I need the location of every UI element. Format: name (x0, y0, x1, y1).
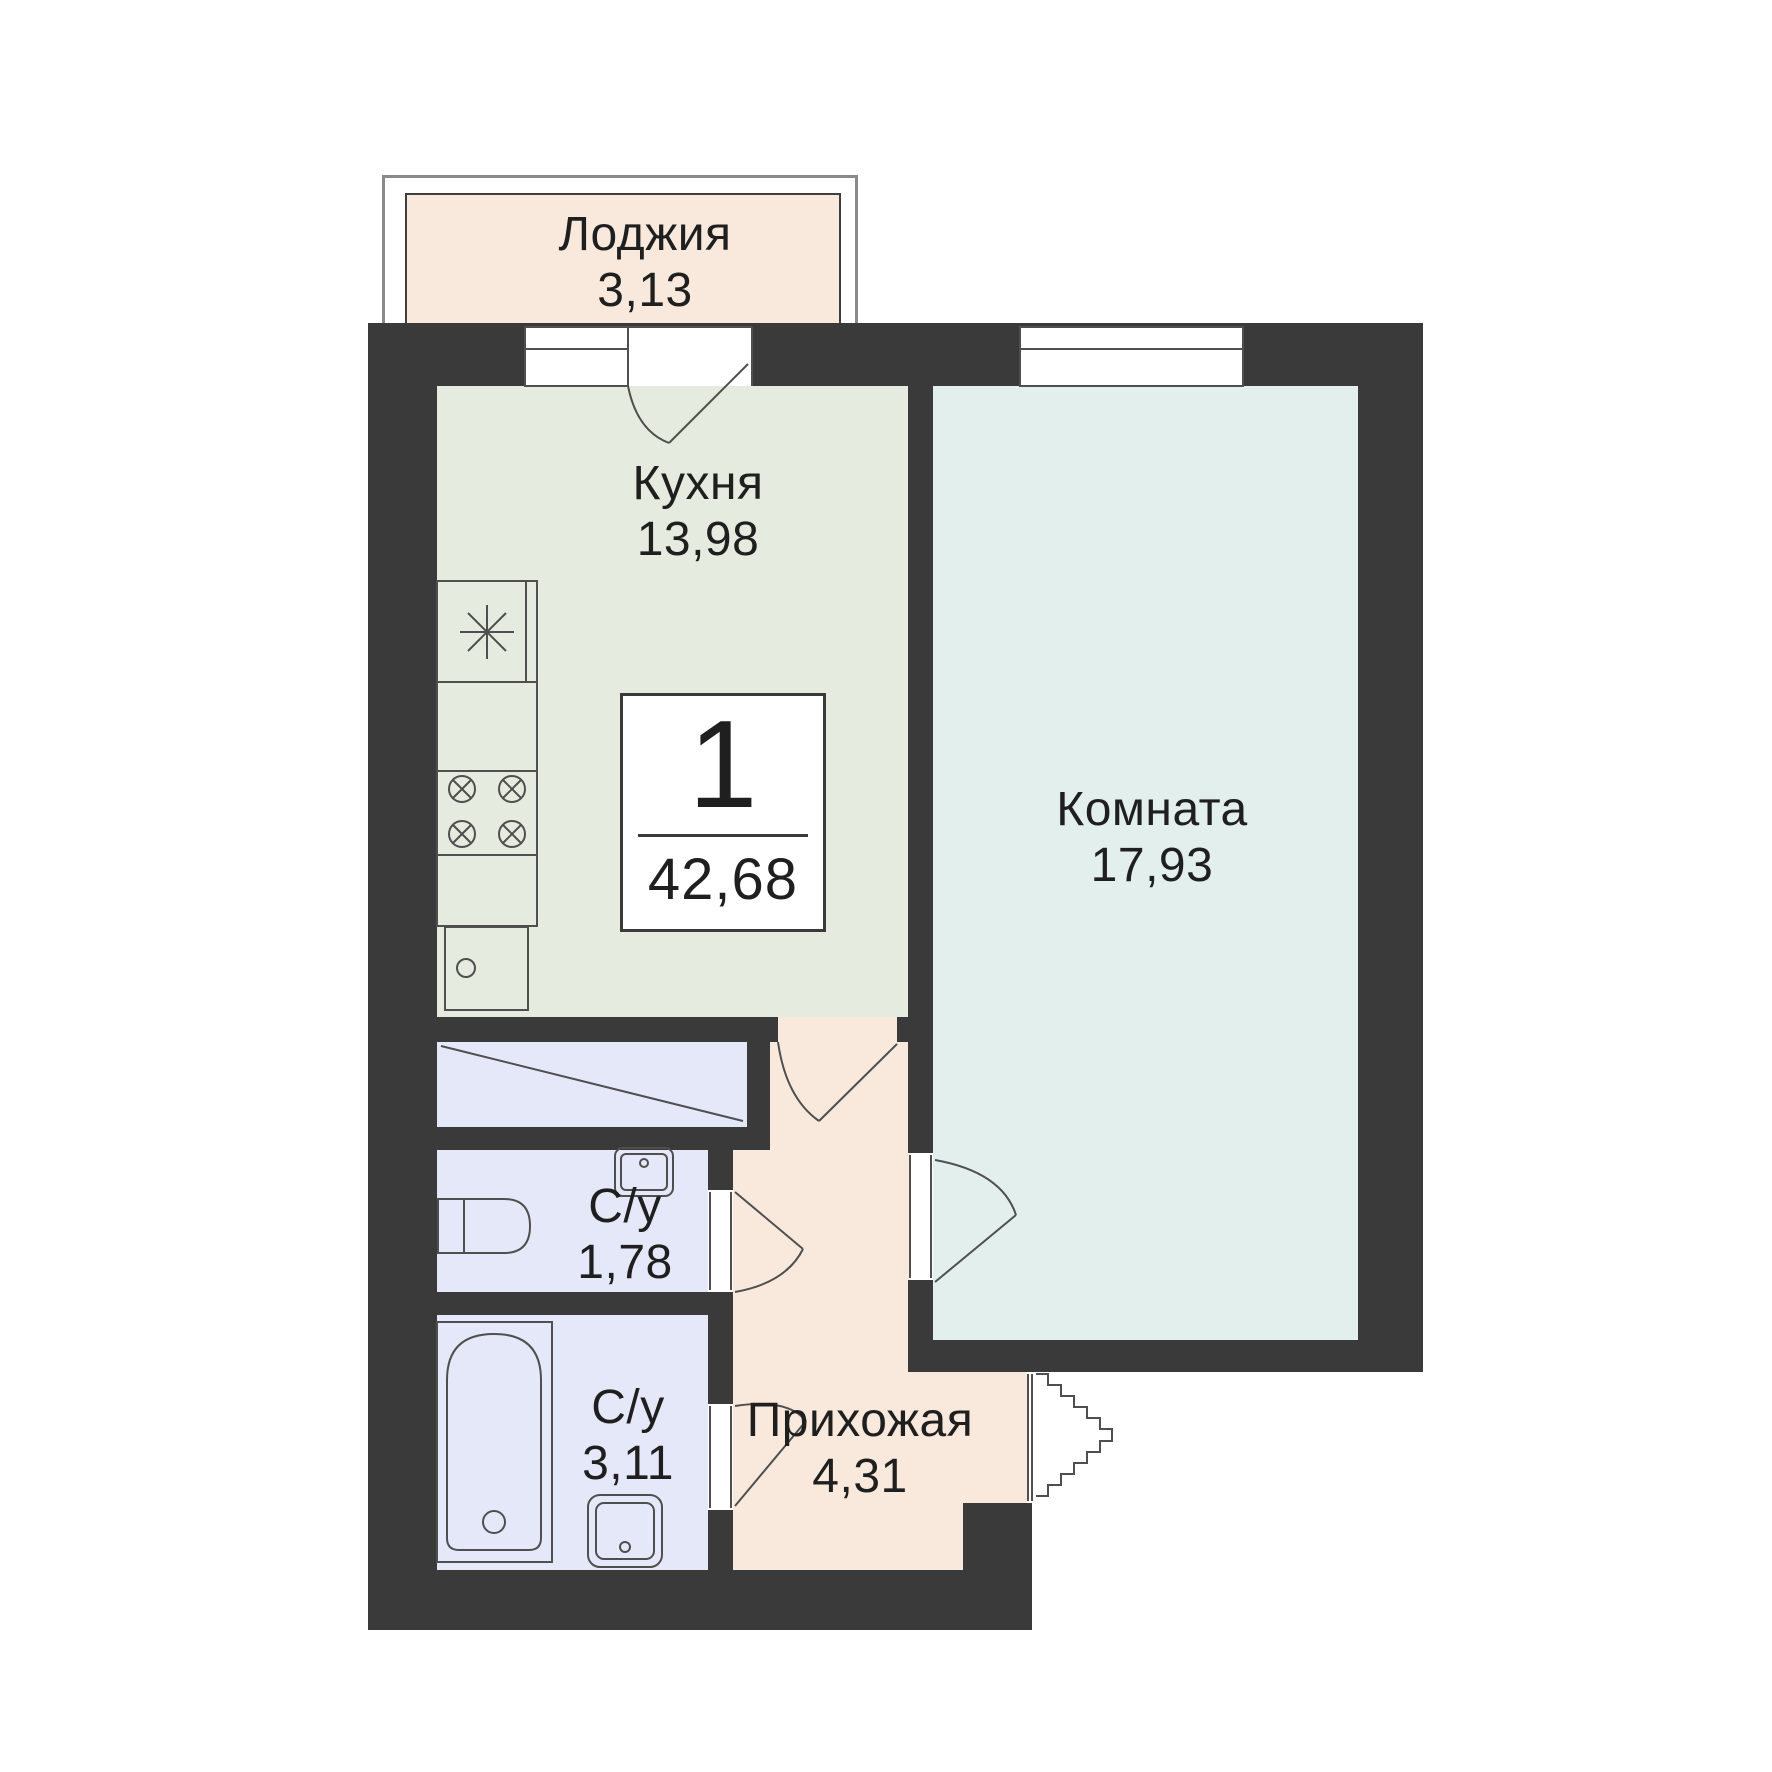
kitchen-label: Кухня 13,98 (633, 456, 764, 568)
wc-name: С/у (577, 1179, 672, 1235)
living-room-name: Комната (1056, 782, 1247, 838)
wc-area: 1,78 (577, 1235, 672, 1291)
wc-label: С/у 1,78 (577, 1179, 672, 1291)
loggia-label: Лоджия 3,13 (558, 207, 731, 319)
loggia-area: 3,13 (558, 263, 731, 319)
entry-door-icon (1036, 1374, 1112, 1496)
balcony-door-opening (628, 327, 752, 386)
wall-kitchen-bottom-left (437, 1017, 778, 1042)
hallway-label: Прихожая 4,31 (747, 1393, 973, 1505)
wall-wc-bathroom (437, 1292, 733, 1315)
bathroom-name: С/у (582, 1380, 674, 1436)
hallway-main-floor (733, 1150, 910, 1372)
loggia-name: Лоджия (558, 207, 731, 263)
living-room-label: Комната 17,93 (1056, 782, 1247, 894)
hallway-kitchen-opening (778, 1017, 897, 1042)
kitchen-area: 13,98 (633, 512, 764, 568)
bathroom-label: С/у 3,11 (582, 1380, 674, 1492)
rooms-count: 1 (689, 696, 758, 834)
living-room-area: 17,93 (1056, 838, 1247, 894)
kitchen-name: Кухня (633, 456, 764, 512)
wardrobe-floor (437, 1042, 747, 1127)
wall-wc-right (708, 1150, 733, 1190)
kitchen-window (525, 327, 628, 386)
wall-bathroom-right-bottom (708, 1510, 733, 1570)
total-area: 42,68 (648, 837, 798, 923)
wall-kitchen-room (908, 386, 933, 1153)
wall-wardrobe-right (747, 1042, 770, 1127)
wall-below-wardrobe (437, 1127, 770, 1150)
floor-plan: Лоджия 3,13 Кухня 13,98 Комната 17,93 С/… (0, 0, 1772, 1772)
hallway-area: 4,31 (747, 1449, 973, 1505)
wall-bottom (368, 1570, 1032, 1630)
hallway-name: Прихожая (747, 1393, 973, 1449)
bathroom-area: 3,11 (582, 1436, 674, 1492)
apartment-badge: 1 42,68 (620, 693, 826, 932)
wall-room-bottom (908, 1340, 1423, 1372)
hallway-neck-floor (770, 1042, 908, 1150)
wall-right (1358, 323, 1423, 1372)
wall-bathroom-right-top (708, 1315, 733, 1404)
living-room-window (1020, 327, 1243, 386)
wall-hall-room-lower (908, 1280, 933, 1340)
wall-left (368, 323, 437, 1630)
wall-below-entry (963, 1503, 1032, 1570)
